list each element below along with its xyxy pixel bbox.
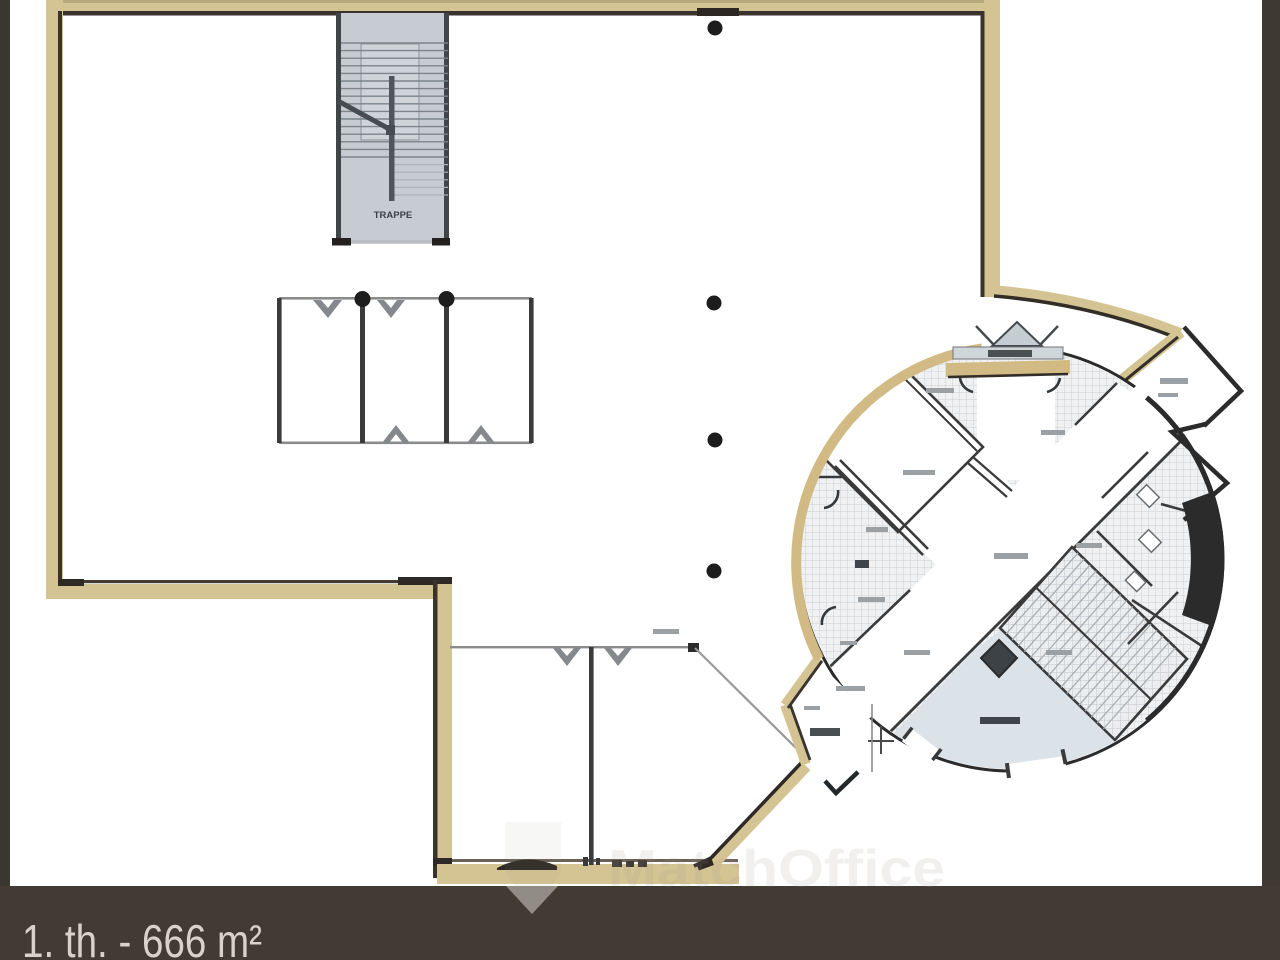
- svg-text:TRAPPE: TRAPPE: [374, 210, 413, 221]
- svg-text:1. th. - 666 m²: 1. th. - 666 m²: [22, 915, 262, 960]
